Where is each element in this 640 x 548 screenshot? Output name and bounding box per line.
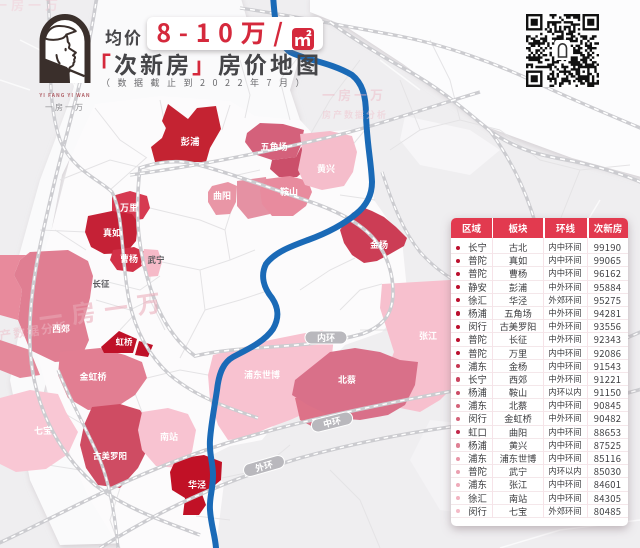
svg-text:虹桥: 虹桥	[115, 336, 133, 348]
svg-text:张江: 张江	[419, 329, 437, 342]
svg-text:一房一万: 一房一万	[322, 85, 386, 104]
svg-text:西郊: 西郊	[52, 322, 70, 335]
svg-text:武宁: 武宁	[147, 254, 164, 266]
svg-text:万里: 万里	[120, 201, 138, 214]
svg-text:真如: 真如	[103, 226, 121, 239]
svg-text:长征: 长征	[92, 278, 110, 290]
svg-text:曲阳: 曲阳	[213, 189, 231, 202]
svg-text:房产数据分析: 房产数据分析	[322, 108, 388, 121]
svg-text:内环: 内环	[317, 331, 335, 344]
svg-text:浦东世博: 浦东世博	[244, 368, 280, 381]
svg-text:古美罗阳: 古美罗阳	[93, 450, 127, 462]
svg-text:北蔡: 北蔡	[338, 373, 356, 386]
svg-text:七宝: 七宝	[34, 424, 52, 437]
svg-text:黄兴: 黄兴	[317, 162, 335, 175]
svg-text:金杨: 金杨	[370, 238, 388, 251]
svg-text:彭浦: 彭浦	[180, 134, 200, 148]
svg-text:金虹桥: 金虹桥	[79, 370, 106, 383]
svg-text:五角场: 五角场	[260, 140, 287, 153]
svg-text:曹杨: 曹杨	[120, 252, 138, 265]
svg-text:鞍山: 鞍山	[280, 185, 298, 198]
svg-text:南站: 南站	[160, 430, 178, 443]
svg-text:华泾: 华泾	[188, 478, 206, 491]
